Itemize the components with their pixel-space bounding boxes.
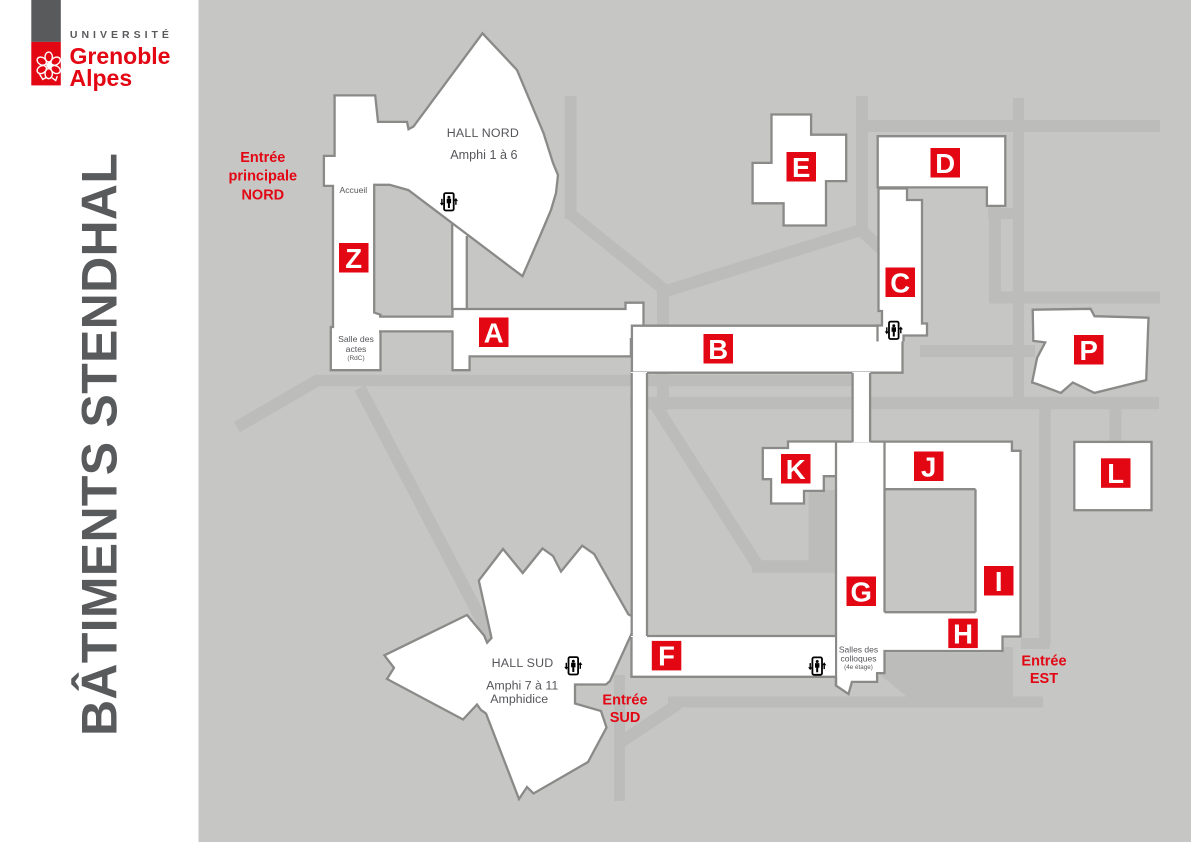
svg-text:I: I xyxy=(995,566,1003,597)
svg-text:G: G xyxy=(851,576,872,607)
svg-text:Amphi 1 à 6: Amphi 1 à 6 xyxy=(450,148,517,162)
svg-text:Entrée: Entrée xyxy=(602,693,647,709)
svg-text:Entrée: Entrée xyxy=(1021,654,1066,670)
svg-text:Accueil: Accueil xyxy=(340,185,368,195)
svg-text:(RdC): (RdC) xyxy=(347,355,364,362)
svg-text:NORD: NORD xyxy=(241,187,284,203)
svg-text:Amphi 7 à 11: Amphi 7 à 11 xyxy=(486,679,558,693)
svg-text:L: L xyxy=(1107,458,1124,489)
svg-text:EST: EST xyxy=(1030,671,1058,687)
svg-text:C: C xyxy=(890,267,910,298)
svg-text:E: E xyxy=(792,152,810,183)
svg-text:H: H xyxy=(953,618,973,649)
svg-text:K: K xyxy=(786,454,806,485)
svg-text:Amphidice: Amphidice xyxy=(490,692,548,706)
svg-text:Entrée: Entrée xyxy=(240,150,285,166)
svg-text:P: P xyxy=(1080,335,1098,366)
svg-text:A: A xyxy=(484,317,504,348)
svg-text:actes: actes xyxy=(346,344,367,354)
svg-text:Z: Z xyxy=(345,243,362,274)
svg-text:J: J xyxy=(921,451,936,482)
svg-text:colloques: colloques xyxy=(841,654,877,664)
svg-text:(4e étage): (4e étage) xyxy=(844,664,873,671)
svg-text:BÂTIMENTS STENDHAL: BÂTIMENTS STENDHAL xyxy=(72,153,128,736)
svg-text:Alpes: Alpes xyxy=(70,65,133,91)
svg-text:HALL NORD: HALL NORD xyxy=(447,126,519,140)
svg-text:principale: principale xyxy=(229,169,298,185)
svg-text:Salle des: Salle des xyxy=(338,334,374,344)
svg-text:UNIVERSITÉ: UNIVERSITÉ xyxy=(70,28,173,41)
svg-text:SUD: SUD xyxy=(610,710,641,726)
svg-text:HALL SUD: HALL SUD xyxy=(492,656,554,670)
svg-text:B: B xyxy=(708,334,728,365)
svg-text:D: D xyxy=(935,148,955,179)
svg-text:F: F xyxy=(658,641,675,672)
